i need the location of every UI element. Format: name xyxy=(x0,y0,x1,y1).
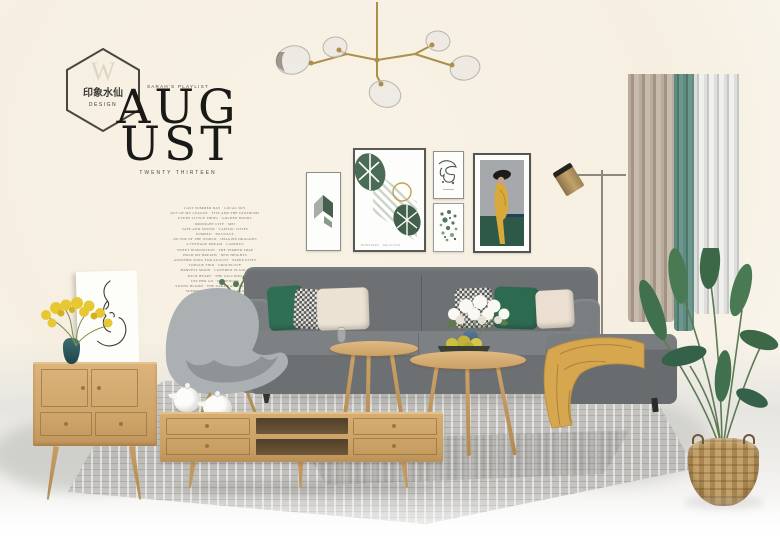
logo-monogram: W xyxy=(91,57,116,86)
coffee-table-large-top xyxy=(410,351,526,369)
console-open-shelf xyxy=(256,418,348,434)
drawer-knob xyxy=(392,444,396,448)
cream-pillow xyxy=(535,289,575,329)
yellow-flowers xyxy=(34,296,118,346)
living-room-moodboard: W 印象水仙 DESIGN SARAH'S PLAYLIST AUG UST T… xyxy=(0,0,780,551)
sofa-cushion-seam xyxy=(421,275,422,335)
leaf-dots-art-frame xyxy=(433,203,464,252)
teapot-lid-knob xyxy=(185,383,190,388)
drawer-knob xyxy=(205,424,209,428)
coffee-table-small-top xyxy=(330,341,418,356)
drawer-knob xyxy=(392,424,396,428)
basket-handle xyxy=(692,434,704,444)
scattered-leaves-artwork xyxy=(436,207,461,248)
basket-handle xyxy=(743,434,755,444)
drawer-knob xyxy=(119,422,123,426)
tv-stand-shadow xyxy=(170,482,440,494)
geometric-artwork xyxy=(310,181,338,241)
teapot-lid-knob xyxy=(215,391,220,396)
branch-chandelier xyxy=(255,2,505,114)
door-knob xyxy=(97,386,101,390)
sofa-seat-seam xyxy=(418,333,419,355)
white-teapot xyxy=(174,387,200,412)
drawer-knob xyxy=(64,422,68,426)
lady-in-yellow-artwork xyxy=(480,160,524,246)
drawer-knob xyxy=(205,444,209,448)
tv-console xyxy=(160,412,443,462)
abstract-sketch-artwork xyxy=(436,156,461,194)
floor-lamp-shade xyxy=(552,162,584,196)
monstera-art-frame: MONSTERA · DELICIOSA xyxy=(353,148,426,252)
bird-of-paradise-plant xyxy=(628,248,780,463)
lady-in-yellow-art-frame xyxy=(473,153,531,253)
oak-sideboard xyxy=(33,362,157,446)
cream-pillow xyxy=(316,287,369,331)
monstera-artwork xyxy=(355,150,424,250)
masthead: SARAH'S PLAYLIST AUG UST TWENTY THIRTEEN xyxy=(103,84,253,176)
lamp-shade-cap xyxy=(552,162,572,177)
console-open-shelf xyxy=(256,439,348,455)
floor-lamp-pole xyxy=(601,170,603,342)
sketch-art-frame xyxy=(433,151,464,199)
small-glass-vase xyxy=(337,327,346,343)
masthead-title-line2: UST xyxy=(103,126,253,163)
door-knob xyxy=(81,386,85,390)
artwork-caption: MONSTERA · DELICIOSA xyxy=(361,244,401,247)
geometric-art-frame xyxy=(306,172,341,251)
